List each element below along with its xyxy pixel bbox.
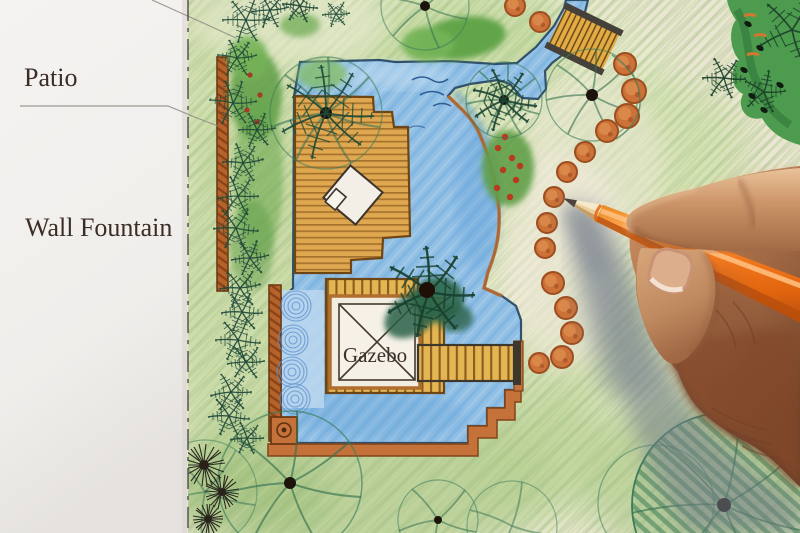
svg-text:Gazebo: Gazebo: [343, 343, 407, 367]
svg-text:Patio: Patio: [24, 63, 77, 92]
svg-text:Wall Fountain: Wall Fountain: [25, 213, 172, 242]
